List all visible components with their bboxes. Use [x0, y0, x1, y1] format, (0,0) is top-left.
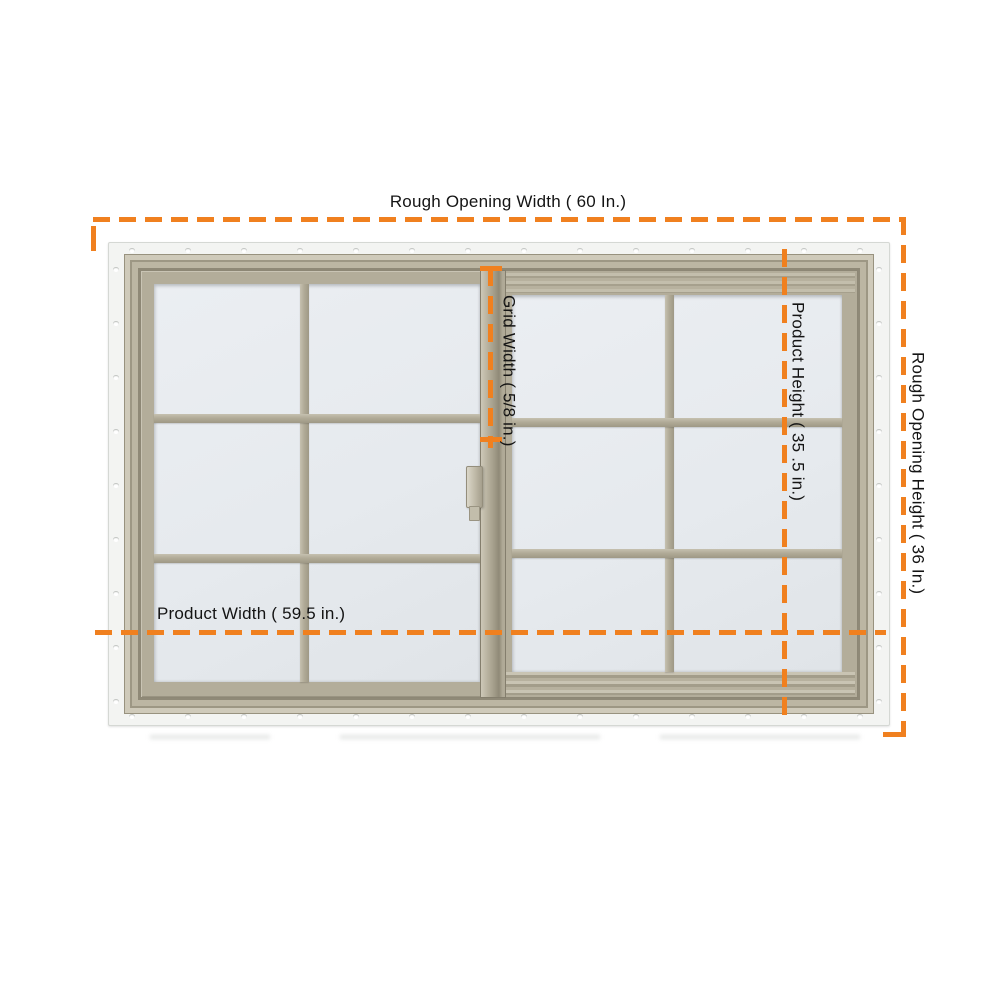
grid-width-dimension-line [488, 268, 493, 448]
nail-hole [876, 483, 882, 488]
nail-hole [113, 267, 119, 272]
nail-hole [857, 714, 863, 719]
rough-opening-width-label: Rough Opening Width ( 60 In.) [100, 193, 916, 212]
grille-bar [665, 295, 674, 672]
product-height-dimension-line [782, 249, 787, 724]
nail-hole [297, 248, 303, 253]
nail-hole [353, 248, 359, 253]
grille-bar [154, 554, 480, 563]
nail-hole [876, 267, 882, 272]
nail-hole [876, 645, 882, 650]
nail-hole [745, 248, 751, 253]
nail-hole [409, 248, 415, 253]
nail-hole [876, 375, 882, 380]
grid-width-top-cap [480, 266, 502, 271]
product-width-dimension-line [95, 630, 886, 635]
slider-track-bottom [501, 672, 855, 695]
nail-hole [577, 248, 583, 253]
nail-hole [185, 248, 191, 253]
sash-latch [466, 466, 483, 508]
nail-hole [577, 714, 583, 719]
nail-hole [241, 248, 247, 253]
nail-hole [633, 714, 639, 719]
rough-opening-bottom-tick [883, 732, 906, 737]
nail-hole [409, 714, 415, 719]
nail-hole [113, 375, 119, 380]
nail-hole [801, 714, 807, 719]
nail-hole [465, 714, 471, 719]
rough-opening-height-dimension-line [901, 217, 906, 736]
nail-hole [113, 429, 119, 434]
nail-hole [185, 714, 191, 719]
product-height-label: Product Height ( 35 .5 in.) [788, 302, 807, 501]
nail-hole [113, 591, 119, 596]
nail-hole [633, 248, 639, 253]
shadow-streak [660, 735, 860, 739]
nail-hole [129, 248, 135, 253]
nail-hole [801, 248, 807, 253]
nail-hole [876, 429, 882, 434]
nail-hole [857, 248, 863, 253]
nail-hole [521, 248, 527, 253]
nail-hole [129, 714, 135, 719]
nail-hole [465, 248, 471, 253]
grille-bar [154, 414, 480, 423]
product-width-label: Product Width ( 59.5 in.) [157, 605, 345, 624]
nail-hole [297, 714, 303, 719]
rough-opening-height-label: Rough Opening Height ( 36 In.) [908, 352, 927, 594]
nail-hole [689, 248, 695, 253]
shadow-streak [340, 735, 600, 739]
grid-width-label: Grid Width ( 5/8 in.) [499, 295, 518, 447]
sash-latch-keeper [469, 506, 480, 521]
nail-hole [521, 714, 527, 719]
nail-hole [353, 714, 359, 719]
nail-hole [241, 714, 247, 719]
rough-opening-left-tick [91, 226, 96, 251]
nail-hole [876, 699, 882, 704]
nail-hole [876, 537, 882, 542]
nail-hole [745, 714, 751, 719]
nail-hole [876, 591, 882, 596]
nail-hole [876, 321, 882, 326]
slider-track-top [501, 273, 855, 293]
product-dimension-diagram: Rough Opening Width ( 60 In.) Rough Open… [0, 0, 1000, 1000]
nail-hole [113, 537, 119, 542]
grille-bar [512, 549, 842, 558]
nail-hole [113, 321, 119, 326]
nail-hole [113, 483, 119, 488]
shadow-streak [150, 735, 270, 739]
rough-opening-width-dimension-line [93, 217, 905, 222]
nail-hole [113, 645, 119, 650]
nail-hole [113, 699, 119, 704]
nail-hole [689, 714, 695, 719]
